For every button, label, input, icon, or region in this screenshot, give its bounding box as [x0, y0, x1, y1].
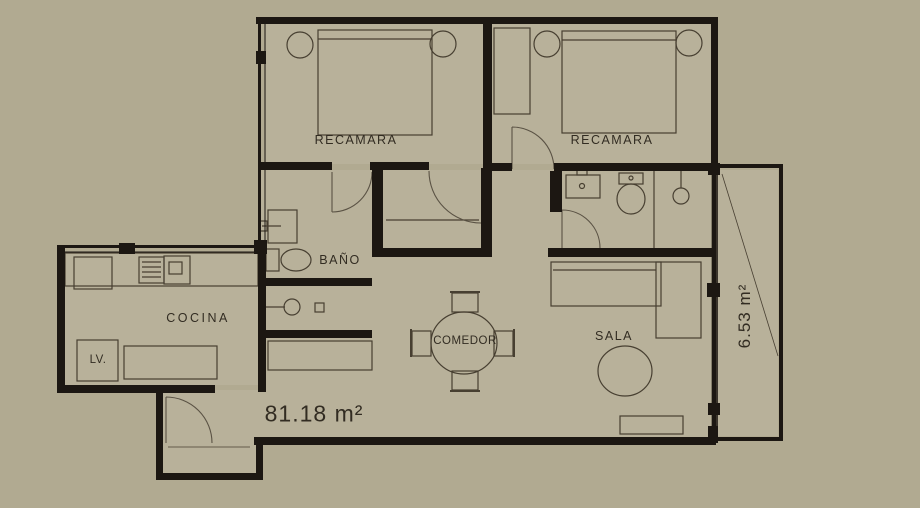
wall: [258, 162, 332, 170]
wall: [57, 245, 65, 392]
wall: [256, 437, 263, 480]
bedroom2-label: RECAMARA: [571, 133, 654, 147]
wall: [57, 385, 215, 393]
kitchen-label: COCINA: [166, 311, 230, 325]
wall: [156, 390, 163, 480]
wall: [554, 163, 712, 171]
dining-label: COMEDOR: [433, 335, 497, 347]
bathroom-label: BAÑO: [319, 253, 360, 267]
wall: [383, 248, 492, 257]
wall: [258, 278, 372, 286]
floor-plan-drawing: [0, 0, 920, 508]
wall: [550, 171, 562, 212]
wall: [258, 330, 372, 338]
wall-block: [256, 51, 266, 64]
laundry-label: LV.: [90, 354, 107, 366]
wall: [254, 437, 716, 445]
wall-block: [254, 240, 267, 254]
wall: [481, 168, 492, 257]
wall: [258, 253, 266, 392]
wall-block: [119, 243, 135, 254]
wall: [711, 17, 718, 165]
balcony-area-label: 6.53 m²: [735, 284, 755, 349]
bedroom1-label: RECAMARA: [315, 133, 398, 147]
wall: [492, 163, 512, 171]
total-area-label: 81.18 m²: [265, 401, 364, 428]
wall: [256, 17, 718, 24]
wall: [372, 162, 383, 257]
living-label: SALA: [595, 329, 633, 343]
wall: [483, 24, 492, 175]
wall: [156, 473, 263, 480]
wall: [548, 248, 712, 257]
floor-plan: RECAMARA RECAMARA BAÑO COCINA COMEDOR SA…: [0, 0, 920, 508]
